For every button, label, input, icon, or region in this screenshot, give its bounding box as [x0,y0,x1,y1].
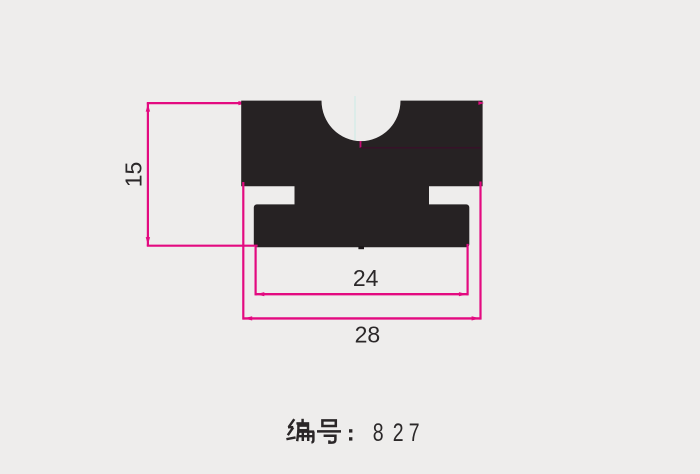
svg-text:24: 24 [353,265,379,291]
svg-text:28: 28 [355,321,381,347]
svg-text:8: 8 [373,419,384,447]
svg-text:7: 7 [409,419,420,447]
svg-text:2: 2 [393,419,404,447]
svg-text:15: 15 [120,162,146,188]
